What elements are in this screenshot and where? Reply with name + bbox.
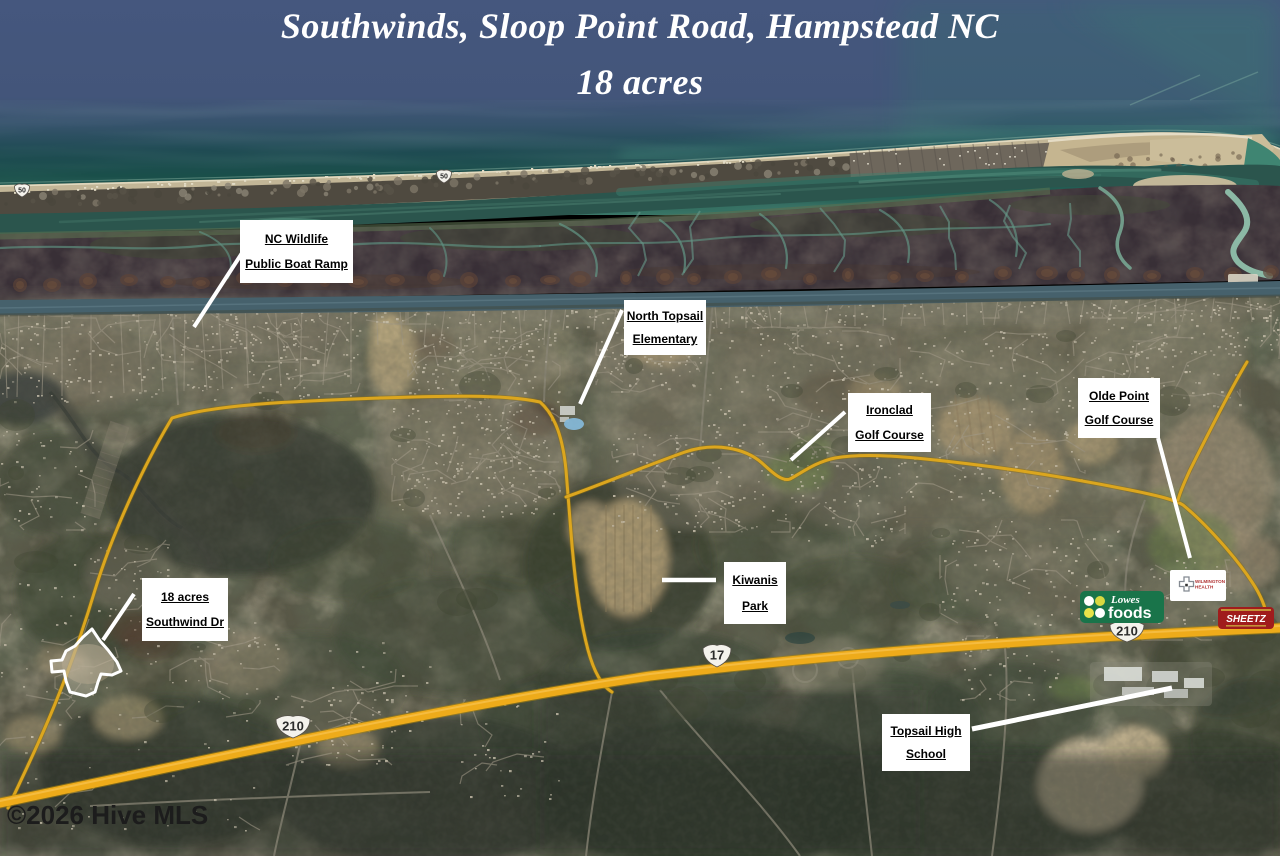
svg-text:SHEETZ: SHEETZ — [1226, 614, 1266, 625]
svg-text:50: 50 — [18, 188, 26, 195]
svg-text:17: 17 — [710, 648, 724, 663]
svg-text:210: 210 — [1116, 624, 1138, 639]
svg-text:WILMINGTON: WILMINGTON — [1195, 579, 1226, 584]
svg-text:210: 210 — [282, 719, 304, 734]
svg-text:foods: foods — [1108, 605, 1152, 622]
svg-text:HEALTH: HEALTH — [1195, 585, 1214, 590]
svg-text:50: 50 — [440, 174, 448, 181]
